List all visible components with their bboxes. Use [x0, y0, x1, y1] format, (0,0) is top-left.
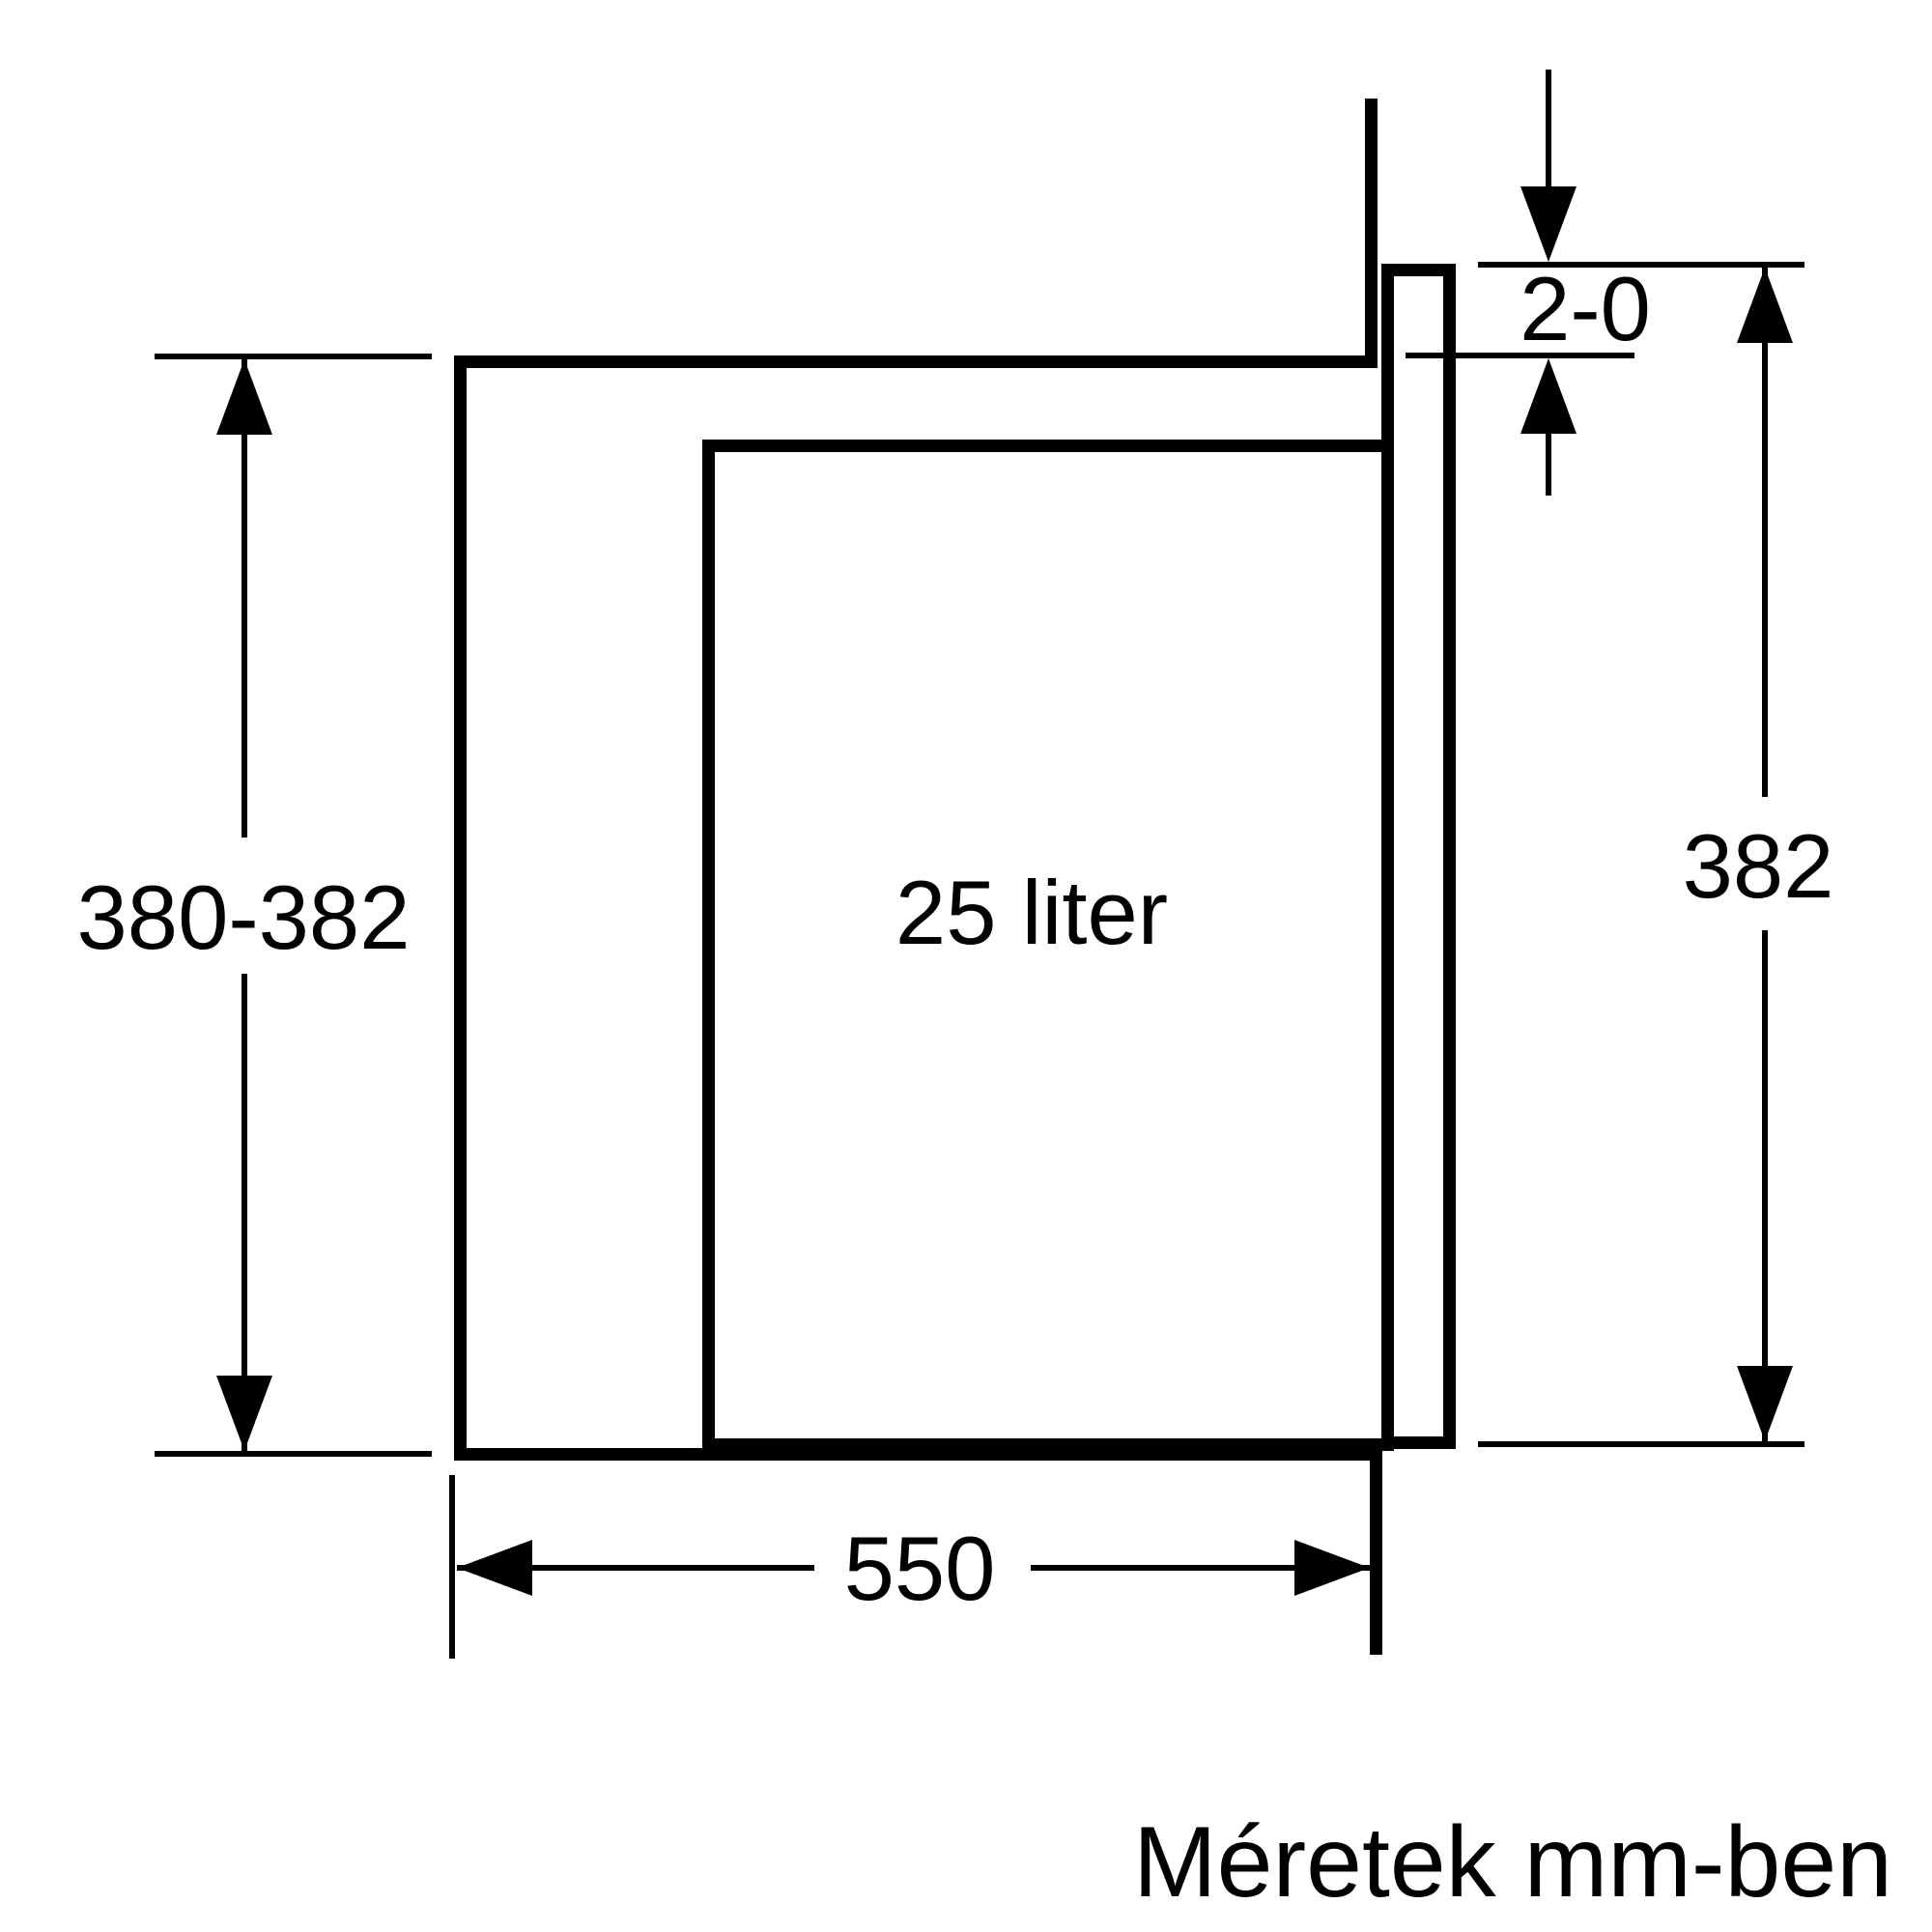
cavity-left-line — [702, 440, 715, 1451]
arrowhead-up-icon — [1520, 358, 1577, 434]
extension-line-left-bottom — [155, 1451, 432, 1457]
niche-height-label: 380-382 — [77, 872, 411, 963]
wall-line-upper — [1365, 99, 1378, 368]
arrowhead-up-icon — [1737, 268, 1793, 343]
dim-line-right-upper-segment — [1762, 268, 1768, 797]
wall-line-lower — [1370, 1448, 1382, 1655]
niche-width-label: 550 — [844, 1523, 996, 1614]
arrowhead-down-icon — [216, 1376, 272, 1451]
niche-left-line — [454, 355, 467, 1461]
extension-line-left-top — [155, 354, 432, 359]
arrowhead-right-icon — [1294, 1540, 1370, 1596]
arrowhead-left-icon — [457, 1540, 532, 1596]
capacity-label: 25 liter — [895, 867, 1168, 958]
extension-line-right-bottom — [1478, 1441, 1804, 1447]
arrowhead-down-icon — [1737, 1366, 1793, 1441]
niche-top-line — [454, 355, 1378, 368]
extension-line-bottom-left — [449, 1475, 455, 1659]
units-note-label: Méretek mm-ben — [1133, 1812, 1892, 1913]
cavity-bottom-line — [702, 1438, 1394, 1451]
appliance-height-label: 382 — [1683, 821, 1834, 912]
installation-dimension-diagram: 380-382 2-0 382 25 liter 550 Méretek mm-… — [0, 0, 1932, 1932]
top-gap-label: 2-0 — [1520, 264, 1651, 355]
arrowhead-down-icon — [1520, 186, 1577, 262]
arrowhead-up-icon — [216, 359, 272, 435]
gap-arrow-down-stem — [1546, 70, 1551, 192]
gap-arrow-up-stem — [1546, 428, 1551, 496]
dim-line-right-lower-segment — [1762, 930, 1768, 1441]
cavity-top-line — [702, 440, 1394, 452]
